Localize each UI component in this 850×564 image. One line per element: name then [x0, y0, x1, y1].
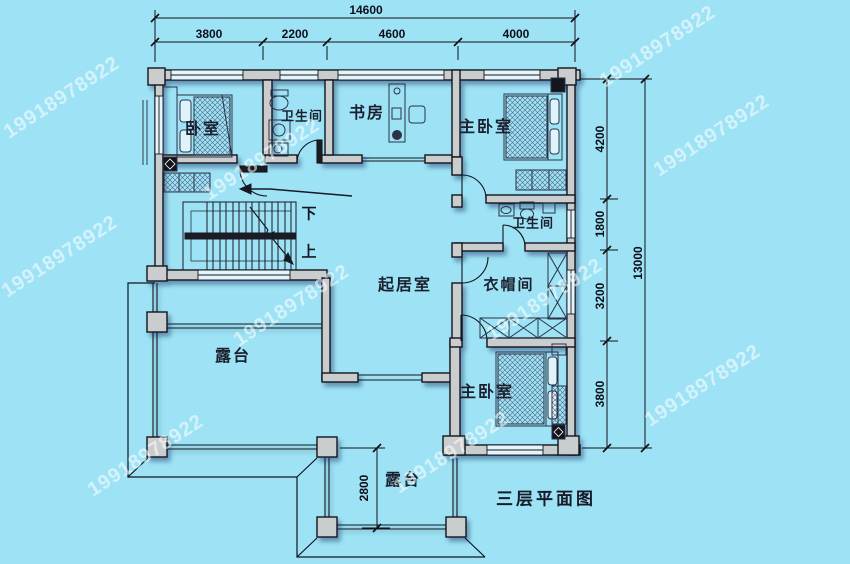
terrace-column	[446, 517, 466, 537]
terrace-column	[147, 437, 167, 457]
wall-west-living	[322, 278, 330, 380]
doors	[240, 140, 525, 341]
wall-south-living-a	[322, 373, 358, 382]
pier-sw	[147, 266, 167, 281]
terrace-column	[147, 312, 167, 332]
door-leaf-bath-top	[317, 140, 322, 163]
stair-up-label: 上	[301, 241, 316, 262]
stair-handrail	[185, 233, 295, 239]
terrace-column	[317, 437, 337, 457]
dim-right-seg-4: 3800	[593, 381, 607, 408]
bed-master-top	[504, 78, 566, 190]
hall-cabinet	[164, 173, 210, 192]
dim-top-total: 14600	[349, 3, 382, 17]
door-leaf-bedroom	[240, 166, 267, 172]
dim-top-seg-1: 3800	[196, 27, 223, 41]
dim-terrace-depth: 2800	[357, 475, 371, 502]
terrace-column	[317, 517, 337, 537]
door-master-bottom	[461, 315, 487, 341]
label-room-master-bottom: 主卧室	[460, 378, 514, 402]
plan-title: 三层平面图	[496, 485, 596, 510]
door-master-top	[462, 175, 486, 199]
label-room-study: 书房	[349, 99, 385, 123]
dim-right-seg-3: 3200	[593, 283, 607, 310]
cloakroom-wardrobes	[480, 253, 567, 338]
wall-west-master-bottom	[450, 340, 460, 448]
stair-down-label: 下	[301, 203, 316, 224]
label-room-bedroom: 卧室	[185, 115, 221, 139]
terrace-railings	[153, 283, 457, 529]
wall-east	[567, 78, 575, 455]
terrace-sliding-door	[358, 375, 422, 380]
pier-top-left	[148, 68, 165, 85]
floor-plan-canvas: 14600 3800 2200 4600 4000 4200 1800 3200…	[0, 0, 850, 564]
label-terrace-big: 露台	[215, 342, 251, 366]
staircase	[183, 184, 352, 270]
dim-top-seg-2: 2200	[282, 27, 309, 41]
pier-master-sw	[443, 436, 465, 455]
label-terrace-small: 露台	[385, 466, 421, 490]
label-room-bath-top: 卫生间	[281, 106, 323, 125]
dim-top-seg-3: 4600	[379, 27, 406, 41]
label-room-cloakroom: 衣帽间	[483, 274, 534, 295]
label-room-living: 起居室	[378, 271, 432, 295]
wall-south-living-b	[422, 373, 454, 382]
study-door	[362, 158, 425, 161]
dim-right-total: 13000	[631, 246, 645, 279]
dim-right-seg-2: 1800	[593, 211, 607, 238]
label-room-bath-mid: 卫生间	[512, 213, 554, 232]
dim-top-seg-4: 4000	[503, 27, 530, 41]
study-desk	[389, 84, 425, 142]
label-room-master-top: 主卧室	[459, 113, 513, 137]
dim-right-seg-1: 4200	[593, 126, 607, 153]
